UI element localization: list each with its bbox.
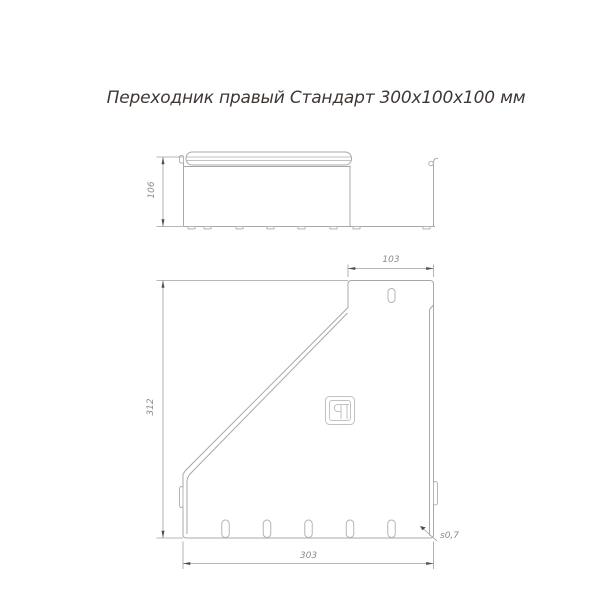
brand-mark-icon: [326, 397, 355, 425]
front-view-left-tab: [180, 487, 184, 508]
front-view-right-tab: [434, 482, 438, 506]
side-view: [157, 152, 439, 229]
front-view-bottom-slots: [222, 520, 396, 538]
dimension-106: [157, 157, 184, 227]
drawing-linework: [0, 0, 600, 600]
technical-drawing-page: Переходник правый Стандарт 300х100х100 м…: [0, 0, 600, 600]
dim-label-top-width: 103: [376, 255, 406, 265]
side-view-top-bead: [186, 152, 352, 165]
front-view-top-slot: [388, 289, 395, 303]
dim-label-front-height: 312: [146, 395, 156, 419]
front-view-right-inner: [430, 305, 434, 536]
front-view-slant-inner: [187, 313, 348, 534]
side-view-hook-knob: [429, 161, 434, 166]
front-view-outline: [183, 281, 434, 539]
side-view-right-wall: [434, 158, 439, 226]
dim-label-bottom-width: 303: [293, 551, 324, 561]
dimension-312: [157, 281, 349, 539]
thickness-leader: [420, 526, 437, 541]
dim-label-thickness: s0,7: [440, 531, 466, 541]
dim-label-side-height: 106: [147, 178, 157, 202]
front-view: [157, 265, 438, 570]
side-view-bead-lines: [187, 157, 352, 161]
dimension-103: [348, 265, 434, 278]
